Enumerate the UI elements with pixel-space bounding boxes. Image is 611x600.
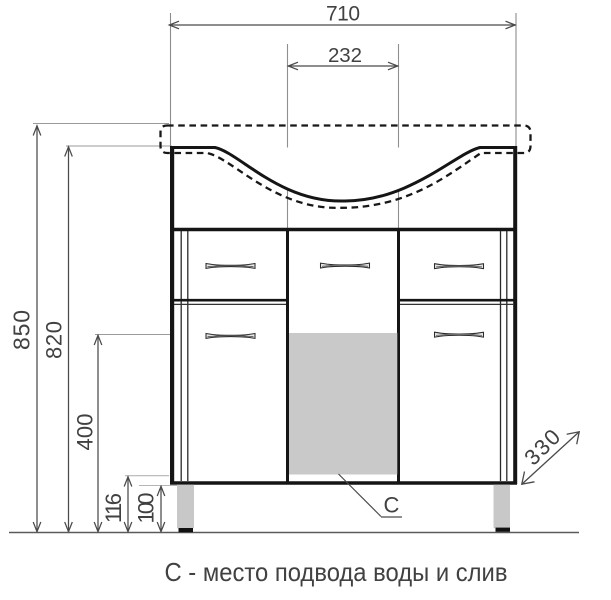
svg-text:850: 850 (9, 310, 35, 350)
svg-text:С: С (384, 493, 400, 518)
svg-text:820: 820 (42, 321, 67, 359)
svg-text:116: 116 (101, 493, 126, 523)
svg-text:232: 232 (328, 44, 362, 67)
svg-text:710: 710 (326, 3, 360, 26)
svg-text:400: 400 (73, 414, 98, 451)
svg-text:100: 100 (134, 493, 159, 524)
svg-text:С - место подвода воды и слив: С - место подвода воды и слив (165, 557, 508, 587)
